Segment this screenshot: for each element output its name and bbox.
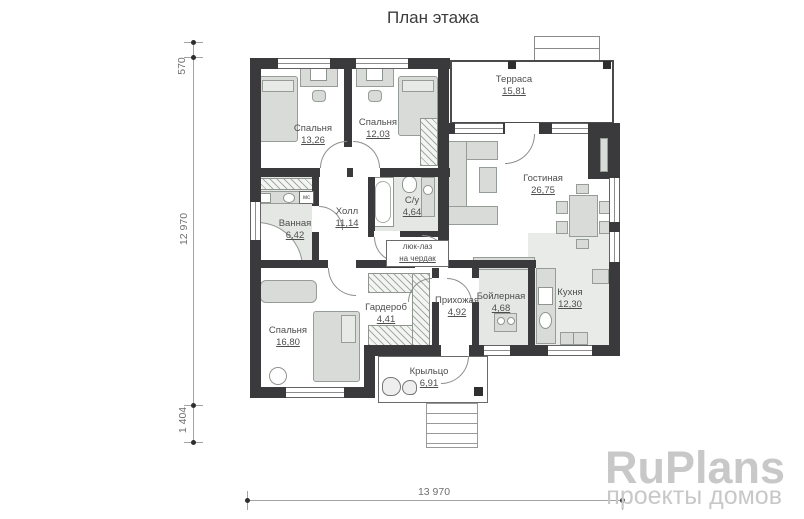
terrace-steps <box>534 36 600 61</box>
room-name: Гостиная <box>523 173 563 184</box>
chair <box>312 90 326 102</box>
dimension-label-12970: 12 970 <box>178 199 190 259</box>
chair <box>556 221 568 234</box>
attic-hatch-label: люк-лаз на чердак <box>386 240 449 267</box>
window <box>548 345 592 356</box>
porch-post <box>474 387 483 396</box>
attic-hatch-line1: люк-лаз <box>403 242 433 251</box>
watermark-tagline: проекты домов <box>575 484 782 509</box>
washer-label-box: мс <box>299 191 314 204</box>
wardrobe-hatch <box>420 118 438 166</box>
dimension-label-1404: 1 404 <box>177 395 189 445</box>
room-area: 6,42 <box>286 230 305 241</box>
door-arc <box>328 268 356 296</box>
door-opening <box>320 168 347 177</box>
divider-line <box>573 333 574 344</box>
chair <box>556 201 568 214</box>
computer-icon <box>310 68 327 81</box>
door-opening <box>441 345 469 356</box>
terrace-post <box>603 61 611 69</box>
window <box>609 232 620 262</box>
room-name: Кухня <box>557 287 582 298</box>
room-label-kitchen: Кухня12,30 <box>530 287 610 312</box>
room-name: Спальня <box>269 325 307 336</box>
page-title: План этажа <box>283 8 583 28</box>
dimension-dot <box>191 403 196 408</box>
terrace-post <box>508 61 516 69</box>
room-label-living: Гостиная26,75 <box>503 173 583 198</box>
dimension-line-vertical <box>193 40 194 444</box>
sink <box>423 185 433 195</box>
coffee-table <box>479 167 497 193</box>
window <box>484 345 510 356</box>
wardrobe-hatch <box>257 178 314 190</box>
room-area: 12,03 <box>366 129 390 140</box>
room-label-wardrobe: Гардероб4,41 <box>346 302 426 327</box>
dimension-dot <box>191 55 196 60</box>
fridge <box>592 269 609 284</box>
room-area: 4,41 <box>377 314 396 325</box>
wall <box>438 58 449 268</box>
computer-icon <box>366 68 383 81</box>
room-area: 4,64 <box>403 207 422 218</box>
dimension-label-570: 570 <box>176 42 188 90</box>
room-area: 4,68 <box>492 303 511 314</box>
bed-pillow <box>402 80 434 92</box>
room-area: 15,81 <box>502 86 526 97</box>
plant <box>269 367 287 385</box>
room-name: Спальня <box>359 117 397 128</box>
room-area: 16,80 <box>276 337 300 348</box>
door-arc <box>505 134 535 164</box>
tv-console <box>600 138 608 172</box>
attic-hatch-line2: на чердак <box>399 254 436 263</box>
room-name: Холл <box>336 206 358 217</box>
window <box>286 387 344 398</box>
room-label-bedroom3: Спальня16,80 <box>248 325 328 350</box>
room-area: 11,14 <box>335 218 358 229</box>
bed-pillow <box>262 80 294 92</box>
door-arc <box>353 141 380 168</box>
wall <box>250 168 450 177</box>
dimension-dot <box>245 498 250 503</box>
room-label-terrace: Терраса15,81 <box>474 74 554 99</box>
dimension-line-horizontal <box>247 500 622 501</box>
room-label-wc: С/у4,64 <box>372 195 452 220</box>
room-area: 26,75 <box>531 185 555 196</box>
dining-table <box>569 195 598 237</box>
sofa <box>260 280 317 303</box>
room-area: 12,30 <box>558 299 582 310</box>
room-name: С/у <box>405 195 419 206</box>
window <box>356 58 408 69</box>
porch-stairs <box>426 403 478 448</box>
window <box>278 58 330 69</box>
chair <box>576 239 589 249</box>
room-label-bedroom2: Спальня12,03 <box>338 117 418 142</box>
door-opening <box>505 123 539 134</box>
room-name: Терраса <box>496 74 532 85</box>
toilet <box>402 176 417 193</box>
sink <box>283 193 295 203</box>
room-label-porch: Крыльцо6,91 <box>389 366 469 391</box>
door-opening <box>328 260 356 268</box>
room-name: Крыльцо <box>410 366 449 377</box>
room-area: 6,91 <box>420 378 439 389</box>
boiler-dial <box>497 317 505 325</box>
room-name: Спальня <box>294 123 332 134</box>
dimension-label-13970: 13 970 <box>394 486 474 498</box>
dimension-dot <box>191 440 196 445</box>
door-opening <box>353 168 380 177</box>
floor-plan-canvas: План этажа <box>0 0 804 519</box>
chair <box>368 90 382 102</box>
sofa <box>448 206 498 225</box>
dimension-dot <box>191 40 196 45</box>
room-name: Гардероб <box>365 302 407 313</box>
boiler-dial <box>507 317 515 325</box>
room-name: Бойлерная <box>477 291 526 302</box>
window <box>552 123 588 134</box>
room-area: 13,26 <box>301 135 325 146</box>
window <box>609 178 620 222</box>
window <box>455 123 503 134</box>
room-label-boiler: Бойлерная4,68 <box>461 291 541 316</box>
kitchen-sink-unit <box>560 332 588 345</box>
